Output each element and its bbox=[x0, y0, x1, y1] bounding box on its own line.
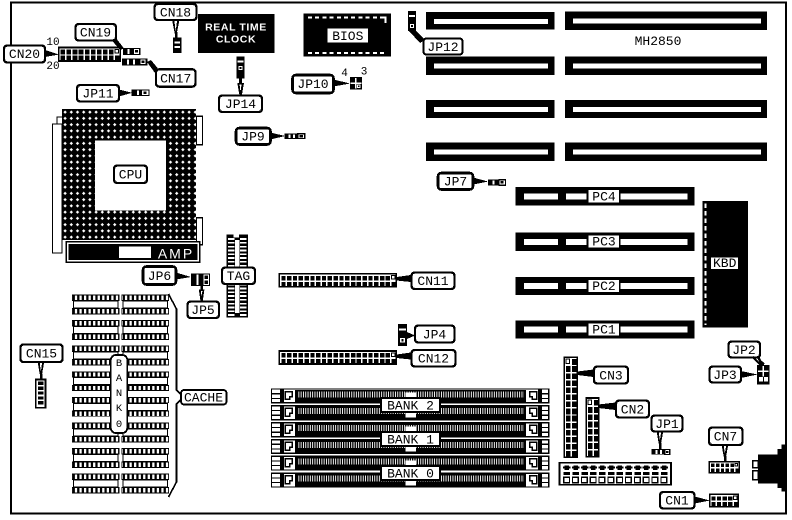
svg-text:CN19: CN19 bbox=[80, 26, 111, 41]
svg-text:TAG: TAG bbox=[227, 269, 250, 284]
svg-text:JP2: JP2 bbox=[732, 343, 755, 358]
svg-text:REAL TIME: REAL TIME bbox=[205, 22, 267, 34]
svg-text:JP4: JP4 bbox=[423, 328, 447, 343]
svg-text:CN12: CN12 bbox=[418, 352, 449, 367]
svg-text:JP10: JP10 bbox=[297, 77, 328, 92]
svg-text:PC1: PC1 bbox=[592, 323, 616, 338]
svg-text:N: N bbox=[116, 388, 122, 400]
svg-text:JP5: JP5 bbox=[191, 303, 214, 318]
svg-text:B: B bbox=[116, 358, 122, 370]
svg-text:3: 3 bbox=[361, 67, 368, 79]
svg-text:CN20: CN20 bbox=[9, 47, 40, 62]
svg-text:JP9: JP9 bbox=[241, 130, 264, 145]
svg-text:BANK 2: BANK 2 bbox=[387, 399, 434, 414]
svg-text:10: 10 bbox=[46, 37, 59, 49]
svg-text:AMP: AMP bbox=[158, 246, 194, 262]
svg-text:BANK 1: BANK 1 bbox=[387, 433, 434, 448]
svg-text:CN18: CN18 bbox=[160, 6, 191, 21]
svg-text:BANK 0: BANK 0 bbox=[387, 467, 434, 482]
svg-text:K: K bbox=[116, 403, 123, 415]
svg-text:JP1: JP1 bbox=[655, 417, 679, 432]
svg-text:KBD: KBD bbox=[713, 256, 737, 271]
svg-text:CN15: CN15 bbox=[26, 347, 57, 362]
svg-text:PC3: PC3 bbox=[592, 235, 615, 250]
svg-text:JP12: JP12 bbox=[427, 40, 458, 55]
svg-text:MH2850: MH2850 bbox=[635, 34, 682, 49]
svg-text:0: 0 bbox=[116, 419, 122, 431]
svg-text:CACHE: CACHE bbox=[184, 391, 223, 406]
svg-text:PC4: PC4 bbox=[592, 189, 616, 204]
svg-text:JP11: JP11 bbox=[82, 87, 113, 102]
svg-text:CN3: CN3 bbox=[599, 369, 622, 384]
svg-text:JP6: JP6 bbox=[148, 269, 171, 284]
svg-text:CLOCK: CLOCK bbox=[216, 34, 256, 46]
svg-text:A: A bbox=[116, 373, 123, 385]
svg-text:CN2: CN2 bbox=[621, 403, 644, 418]
svg-text:JP7: JP7 bbox=[444, 175, 467, 190]
svg-text:CN1: CN1 bbox=[665, 494, 689, 509]
svg-text:BIOS: BIOS bbox=[332, 29, 363, 44]
svg-text:20: 20 bbox=[46, 61, 59, 73]
svg-text:JP14: JP14 bbox=[225, 97, 256, 112]
svg-text:PC2: PC2 bbox=[592, 279, 615, 294]
svg-text:CN7: CN7 bbox=[714, 430, 737, 445]
svg-text:JP3: JP3 bbox=[713, 368, 736, 383]
svg-text:CN17: CN17 bbox=[160, 72, 191, 87]
svg-text:4: 4 bbox=[341, 68, 348, 80]
svg-text:CN11: CN11 bbox=[417, 274, 448, 289]
svg-text:CPU: CPU bbox=[119, 168, 142, 183]
